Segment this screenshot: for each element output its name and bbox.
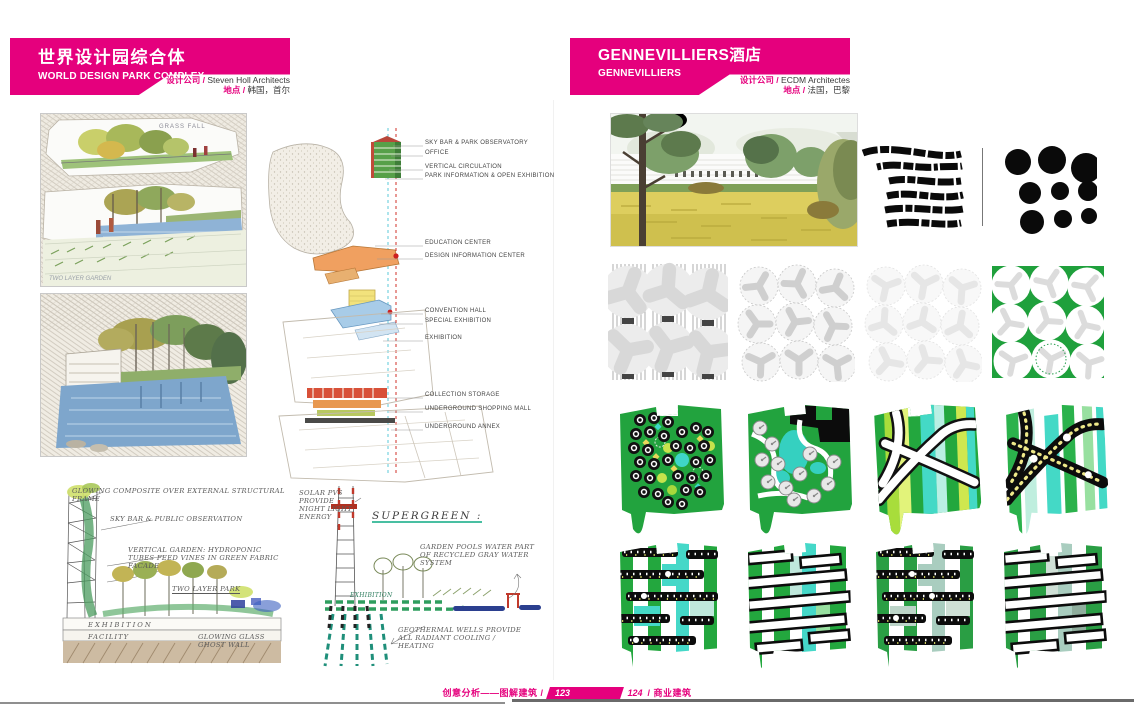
right-page-title: GENNEVILLIERS酒店	[598, 43, 850, 65]
left-location: 韩国，首尔	[247, 85, 290, 95]
right-location-label: 地点 /	[783, 85, 805, 95]
plan-flag-dotted-bars	[610, 536, 730, 686]
note-geothermal: GEOTHERMAL WELLS PROVIDE ALL RADIANT COO…	[398, 626, 523, 650]
left-firm: Steven Holl Architects	[207, 75, 290, 85]
plan-flag-white-bars	[738, 536, 858, 686]
landscape-photo	[610, 113, 858, 247]
pattern-wavy-bars	[857, 140, 969, 235]
axon-label-special-exhibition: SPECIAL EXHIBITION	[425, 318, 491, 324]
watercolor-sketch-pond	[40, 293, 247, 457]
plan-flag-white-paths	[866, 398, 986, 548]
right-location: 法国，巴黎	[807, 85, 850, 95]
texture-tile-stripes-circles	[608, 262, 728, 382]
axon-label-shopping: UNDERGROUND SHOPPING MALL	[425, 406, 531, 412]
axon-label-office: OFFICE	[425, 150, 449, 156]
note-two-layer-park: TWO LAYER PARK	[172, 585, 240, 594]
footer-page-left-box: 123	[547, 687, 625, 699]
plan-flag-pools	[738, 398, 858, 548]
left-credits: 设计公司 / Steven Holl Architects 地点 / 韩国，首尔	[140, 75, 290, 95]
right-credits: 设计公司 / ECDM Architectes 地点 / 法国，巴黎	[700, 75, 850, 95]
plan-flag-white-bars-muted	[994, 536, 1114, 686]
pattern-dots	[1002, 145, 1097, 240]
axon-label-education: EDUCATION CENTER	[425, 240, 491, 246]
left-firm-label: 设计公司 /	[166, 75, 205, 85]
plan-flag-black-paths	[994, 398, 1114, 548]
book-spread: 世界设计园综合体 WORLD DESIGN PARK COMPLEX 设计公司 …	[0, 0, 1134, 720]
note-exhibition-band: EXHIBITION	[88, 621, 153, 629]
plan-flag-dots	[610, 398, 730, 548]
axon-label-collection: COLLECTION STORAGE	[425, 392, 500, 398]
page-gutter	[553, 100, 554, 680]
note-exhibition-deck: EXHIBITION	[350, 592, 393, 600]
axon-label-vertical: VERTICAL CIRCULATION	[425, 164, 502, 170]
right-firm: ECDM Architectes	[781, 75, 850, 85]
svg-text:GRASS FALL: GRASS FALL	[159, 124, 206, 130]
note-solar: SOLAR PVS PROVIDE NIGHT LIGHT ENERGY	[299, 489, 357, 521]
footer-category: / 商业建筑	[648, 686, 692, 699]
plan-flag-dotted-bars-muted	[866, 536, 986, 686]
svg-text:TWO LAYER GARDEN: TWO LAYER GARDEN	[49, 276, 112, 282]
note-facility-band: FACILITY	[88, 633, 129, 641]
texture-tile-circles-dense	[735, 262, 855, 382]
axon-label-annex: UNDERGROUND ANNEX	[425, 424, 500, 430]
axon-label-skybar: SKY BAR & PARK OBSERVATORY	[425, 140, 528, 146]
note-vertical-garden: VERTICAL GARDEN: HYDROPONIC TUBES FEED V…	[128, 546, 286, 570]
texture-tile-circles-faint	[862, 262, 982, 382]
footer-page-left: 123	[548, 688, 570, 698]
axon-label-exhibition: EXHIBITION	[425, 335, 462, 341]
footer: 创意分析——图解建筑 / 123 124 / 商业建筑	[0, 686, 1134, 699]
left-page-bottom-edge	[0, 702, 505, 704]
axon-label-convention: CONVENTION HALL	[425, 308, 486, 314]
note-garden-pools: GARDEN POOLS WATER PART OF RECYCLED GRAY…	[420, 543, 538, 567]
note-supergreen-title: SUPERGREEN :	[372, 512, 482, 523]
pattern-divider	[982, 148, 983, 226]
watercolor-sketch-grass-fall: GRASS FALL TWO LAYER GARDEN	[40, 113, 247, 287]
left-page-title: 世界设计园综合体	[38, 43, 290, 68]
right-page-bottom-edge	[512, 699, 1134, 702]
axon-label-design-info: DESIGN INFORMATION CENTER	[425, 253, 525, 259]
axon-label-parkinfo: PARK INFORMATION & OPEN EXHIBITION	[425, 173, 554, 179]
left-location-label: 地点 /	[223, 85, 245, 95]
texture-tile-green-circles	[988, 262, 1108, 382]
note-skybar: SKY BAR & PUBLIC OBSERVATION	[110, 515, 280, 523]
note-glowing-frame: GLOWING COMPOSITE OVER EXTERNAL STRUCTUR…	[72, 487, 287, 503]
right-firm-label: 设计公司 /	[740, 75, 779, 85]
note-ghost-wall: GLOWING GLASS GHOST WALL	[198, 633, 290, 649]
footer-page-right: 124	[627, 688, 642, 698]
footer-series-title: 创意分析——图解建筑 /	[442, 686, 543, 699]
